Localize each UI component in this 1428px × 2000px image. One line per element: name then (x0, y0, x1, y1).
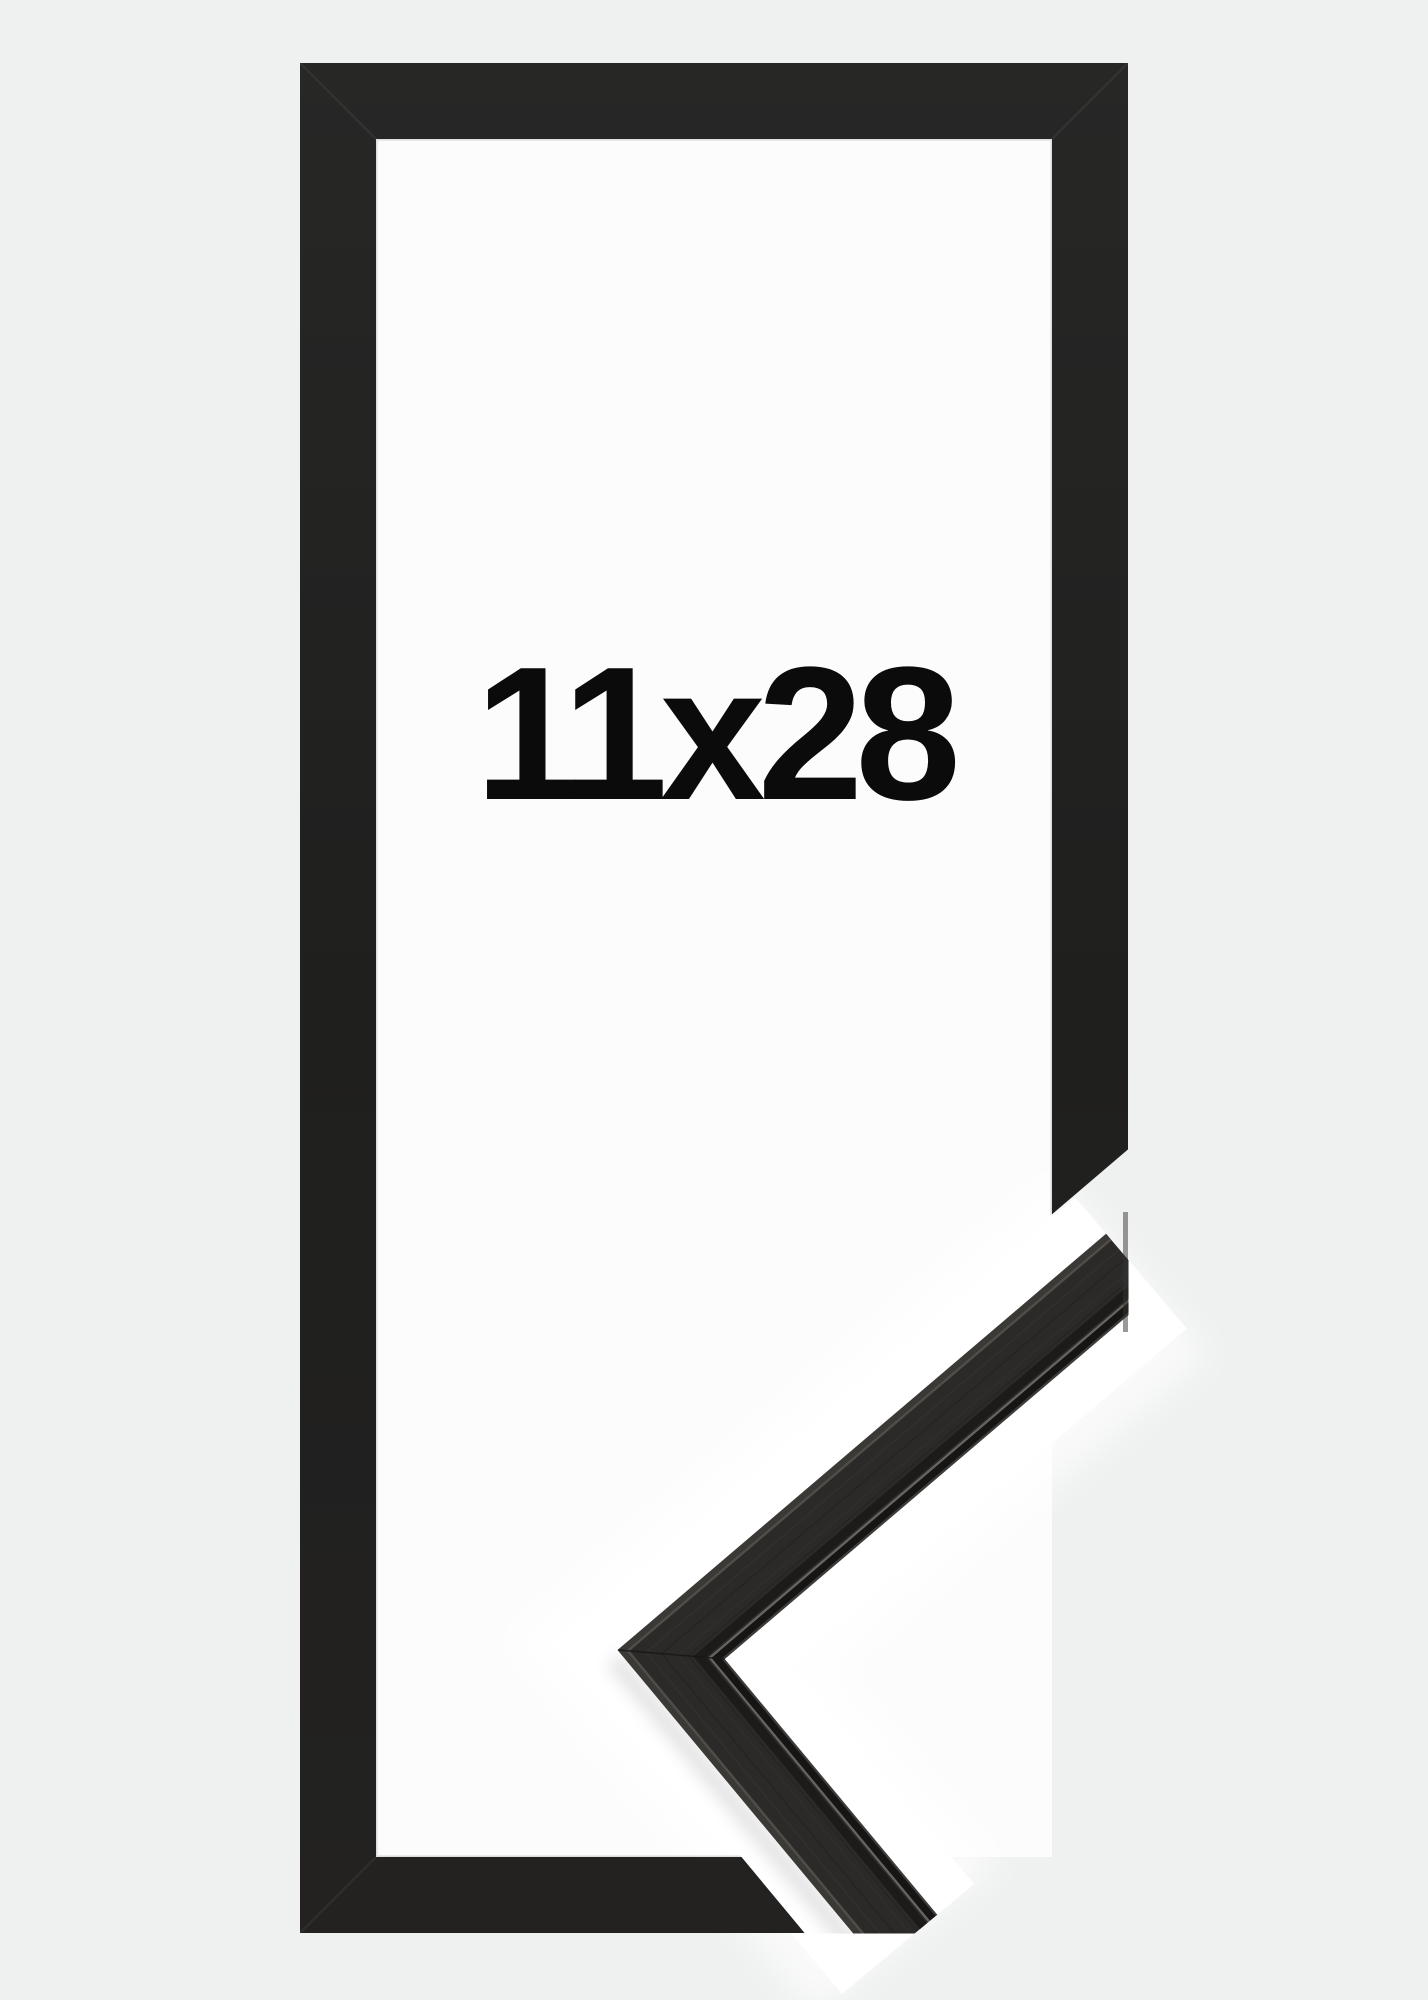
product-image: 11x28 (0, 0, 1428, 2000)
size-label: 11x28 (475, 639, 953, 829)
frame-mockup-graphic (0, 0, 1428, 2000)
